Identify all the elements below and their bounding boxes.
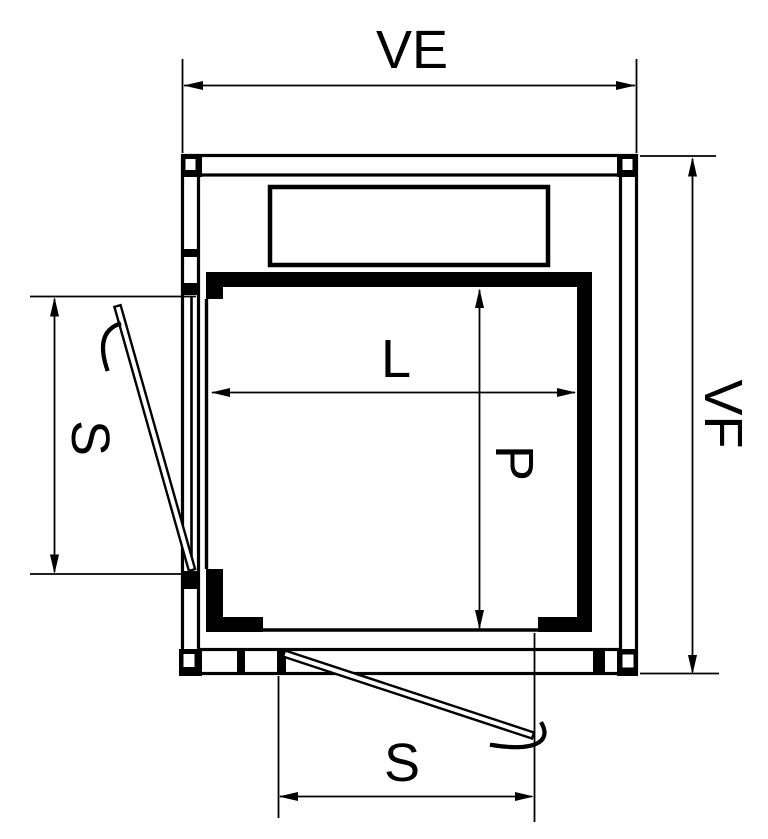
l-arrowhead-left [211,388,230,397]
dim-label-vf: VF [696,379,750,448]
separator-bottom-band-1 [237,650,245,673]
dim-label-ve: VE [376,23,448,77]
car-corner-bottom-right-foot [538,617,592,632]
dim-label-s-side: S [63,420,117,456]
corner-inset-bottom-right [623,655,634,668]
dim-label-s-front: S [384,736,420,790]
ve-arrowhead-left [184,81,204,90]
s-front-arrowhead-left [279,792,299,801]
dim-label-p: P [487,445,541,481]
s-side-arrowhead-bottom [50,555,59,575]
separator-left-band-upper [182,249,199,257]
separator-bottom-band-2 [593,650,605,672]
s-front-arrowhead-right [515,792,534,801]
vf-arrowhead-top [688,157,697,177]
ve-arrowhead-right [616,81,636,90]
car-top-wall [206,272,592,287]
machine-box [270,187,548,265]
separator-left-band-jamb-top [184,283,198,295]
car-corner-bottom-left-foot [206,617,263,632]
bottom-door-leaf [283,651,534,739]
p-arrowhead-bottom [475,610,484,630]
vf-arrowhead-bottom [688,655,697,675]
p-arrowhead-top [475,289,484,309]
dim-l [211,388,576,397]
corner-inset-top-right [623,159,633,170]
dim-label-l: L [381,332,411,386]
s-side-arrowhead-top [50,297,59,317]
left-door-swing-arc [103,324,119,369]
corner-inset-bottom-left [184,654,195,667]
technical-drawing-elevator-plan: VE VF L P S S [0,0,768,839]
l-arrowhead-right [557,388,576,397]
dim-p [475,289,484,630]
corner-inset-top-left [186,159,196,170]
car-right-wall [577,272,592,632]
car-corner-top-left [206,272,223,299]
